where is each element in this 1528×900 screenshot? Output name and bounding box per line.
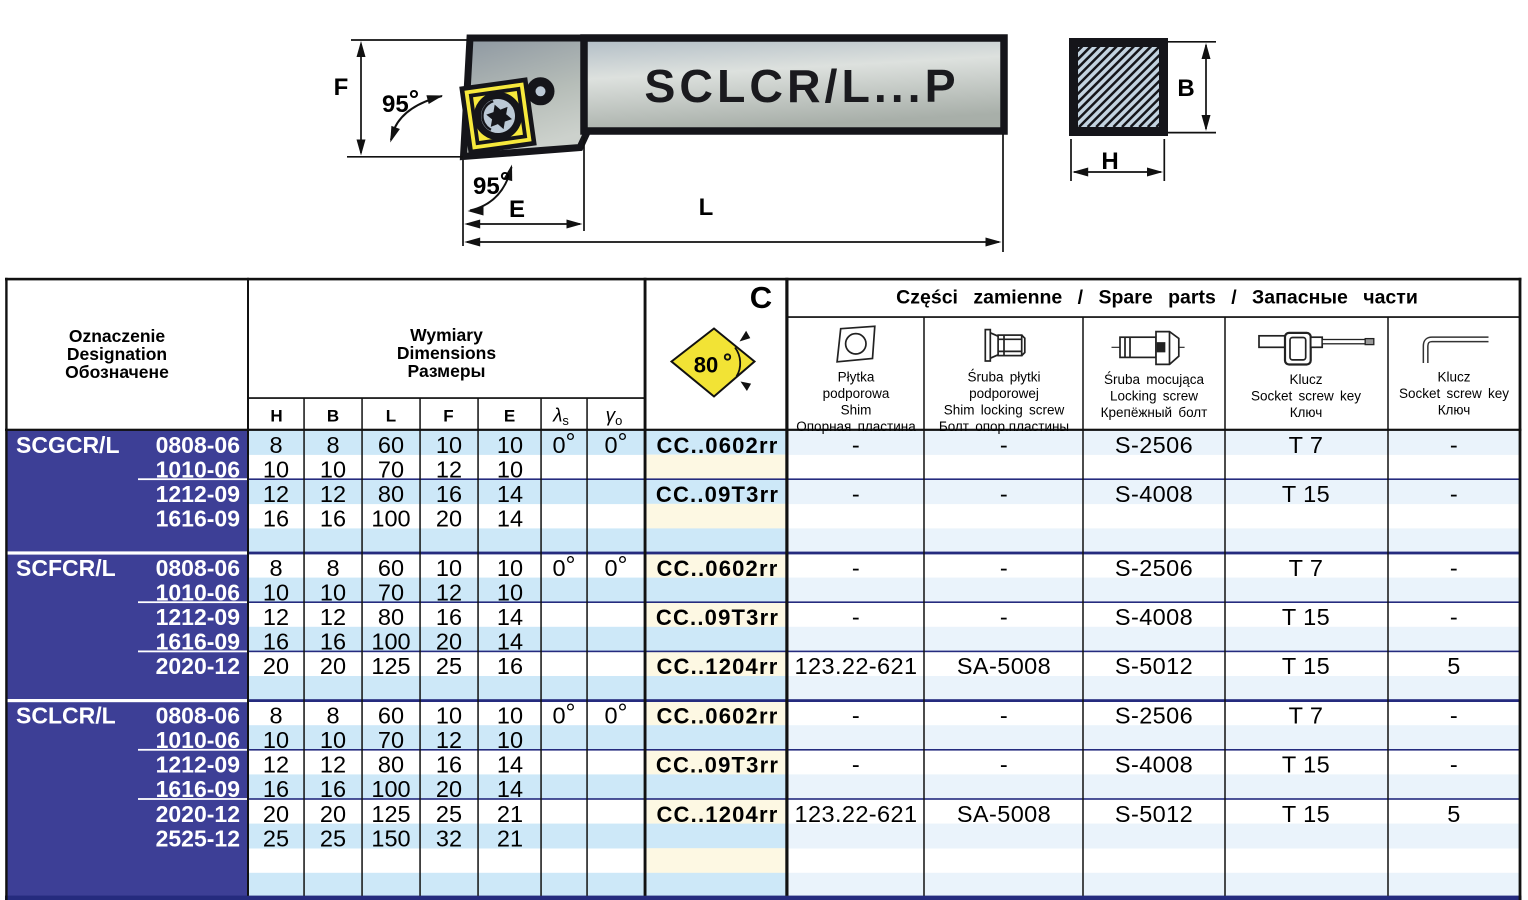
svg-text:S-2506: S-2506 [1115,555,1193,581]
svg-text:-: - [852,555,860,581]
svg-text:S-4008: S-4008 [1115,604,1193,630]
svg-text:10: 10 [497,456,523,482]
svg-text:14: 14 [497,752,523,778]
svg-text:L: L [386,407,396,426]
svg-text:-: - [1000,752,1008,778]
svg-text:Крепёжный болт: Крепёжный болт [1101,405,1208,420]
svg-text:C: C [750,280,772,315]
svg-text:0808-06: 0808-06 [156,555,240,581]
svg-text:12: 12 [436,727,462,753]
svg-text:Shim: Shim [841,403,872,418]
svg-text:T 7: T 7 [1289,555,1324,581]
svg-text:12: 12 [320,604,346,630]
svg-text:-: - [852,481,860,507]
svg-text:12: 12 [263,604,289,630]
svg-text:SA-5008: SA-5008 [957,653,1051,679]
svg-text:1616-09: 1616-09 [156,629,240,655]
svg-text:60: 60 [378,555,404,581]
svg-text:5: 5 [1447,801,1460,827]
svg-text:2020-12: 2020-12 [156,653,240,679]
svg-text:10: 10 [497,727,523,753]
svg-text:1616-09: 1616-09 [156,506,240,532]
svg-text:Socket screw key: Socket screw key [1399,386,1509,401]
svg-text:125: 125 [371,653,410,679]
svg-text:100: 100 [371,629,410,655]
svg-text:14: 14 [497,629,523,655]
svg-text:12: 12 [263,481,289,507]
svg-text:B: B [327,407,339,426]
svg-text:CC..1204rr: CC..1204rr [656,802,778,827]
svg-text:70: 70 [378,727,404,753]
svg-text:123.22-621: 123.22-621 [795,801,918,827]
svg-text:λs: λs [552,406,569,429]
svg-text:150: 150 [371,825,410,851]
svg-text:Oznaczenie: Oznaczenie [69,326,166,346]
svg-text:0°: 0° [552,428,575,458]
svg-text:1010-06: 1010-06 [156,456,240,482]
svg-text:Części zamienne / Spare parts: Części zamienne / Spare parts / Запасные… [896,287,1418,309]
svg-text:20: 20 [436,629,462,655]
svg-text:8: 8 [326,555,339,581]
svg-text:8: 8 [269,555,282,581]
svg-text:Designation: Designation [67,344,167,364]
svg-text:12: 12 [320,752,346,778]
svg-text:123.22-621: 123.22-621 [795,653,918,679]
svg-text:20: 20 [263,653,289,679]
svg-text:60: 60 [378,702,404,728]
svg-text:Размеры: Размеры [408,361,486,381]
svg-text:0°: 0° [604,551,627,581]
svg-text:80: 80 [694,353,718,378]
svg-text:60: 60 [378,432,404,458]
svg-text:10: 10 [436,555,462,581]
svg-text:10: 10 [497,702,523,728]
svg-text:-: - [852,604,860,630]
svg-text:14: 14 [497,481,523,507]
svg-text:95°: 95° [382,84,419,118]
svg-text:8: 8 [326,432,339,458]
svg-text:10: 10 [497,432,523,458]
svg-text:25: 25 [263,825,289,851]
svg-text:1212-09: 1212-09 [156,752,240,778]
svg-text:1616-09: 1616-09 [156,776,240,802]
svg-text:21: 21 [497,801,523,827]
svg-text:32: 32 [436,825,462,851]
svg-text:10: 10 [320,456,346,482]
svg-text:16: 16 [263,629,289,655]
svg-text:10: 10 [436,702,462,728]
svg-text:20: 20 [320,801,346,827]
svg-text:Dimensions: Dimensions [397,343,496,363]
svg-text:CC..1204rr: CC..1204rr [656,654,778,679]
svg-text:T 15: T 15 [1282,481,1330,507]
svg-text:S-4008: S-4008 [1115,481,1193,507]
svg-text:10: 10 [263,727,289,753]
svg-text:10: 10 [263,456,289,482]
svg-text:1010-06: 1010-06 [156,579,240,605]
svg-text:25: 25 [320,825,346,851]
svg-text:-: - [1000,702,1008,728]
svg-text:80: 80 [378,604,404,630]
svg-text:S-4008: S-4008 [1115,752,1193,778]
svg-text:10: 10 [436,432,462,458]
svg-text:E: E [504,407,515,426]
svg-text:20: 20 [320,653,346,679]
svg-text:16: 16 [436,604,462,630]
svg-text:-: - [1000,555,1008,581]
svg-text:14: 14 [497,604,523,630]
svg-text:1212-09: 1212-09 [156,604,240,630]
svg-text:-: - [1450,752,1458,778]
svg-text:H: H [270,407,282,426]
svg-text:CC..0602rr: CC..0602rr [656,556,778,581]
svg-text:-: - [1450,432,1458,458]
svg-text:Socket screw key: Socket screw key [1251,389,1361,404]
svg-text:12: 12 [320,481,346,507]
svg-text:CC..09T3rr: CC..09T3rr [656,482,779,507]
svg-text:10: 10 [497,555,523,581]
svg-text:-: - [852,702,860,728]
svg-text:T 15: T 15 [1282,801,1330,827]
svg-text:podporowa: podporowa [823,386,890,401]
svg-text:Ключ: Ключ [1438,403,1471,418]
svg-text:-: - [852,752,860,778]
svg-text:16: 16 [320,776,346,802]
svg-text:14: 14 [497,506,523,532]
svg-text:Ключ: Ключ [1290,405,1323,420]
svg-text:Śruba płytki: Śruba płytki [967,370,1040,385]
svg-text:S-5012: S-5012 [1115,653,1193,679]
svg-text:CC..09T3rr: CC..09T3rr [656,605,779,630]
svg-text:SCGCR/L: SCGCR/L [16,432,120,458]
svg-text:Обозначене: Обозначене [65,362,169,382]
svg-text:1212-09: 1212-09 [156,481,240,507]
svg-text:H: H [1101,148,1118,175]
svg-text:70: 70 [378,456,404,482]
svg-text:0808-06: 0808-06 [156,702,240,728]
svg-text:70: 70 [378,579,404,605]
svg-text:0°: 0° [552,551,575,581]
svg-text:-: - [1000,481,1008,507]
svg-text:S-2506: S-2506 [1115,702,1193,728]
svg-text:T 15: T 15 [1282,653,1330,679]
svg-text:16: 16 [436,481,462,507]
svg-text:T 15: T 15 [1282,604,1330,630]
svg-text:-: - [1450,702,1458,728]
svg-text:Locking screw: Locking screw [1110,389,1198,404]
svg-text:-: - [1000,432,1008,458]
svg-text:SCLCR/L: SCLCR/L [16,702,116,728]
svg-text:Klucz: Klucz [1289,372,1322,387]
svg-text:-: - [1450,555,1458,581]
svg-text:0°: 0° [604,428,627,458]
svg-text:L: L [699,194,714,221]
svg-text:100: 100 [371,776,410,802]
svg-text:20: 20 [436,776,462,802]
svg-text:10: 10 [497,579,523,605]
svg-text:T 7: T 7 [1289,432,1324,458]
svg-text:F: F [334,74,349,101]
svg-text:12: 12 [263,752,289,778]
svg-text:T 7: T 7 [1289,702,1324,728]
svg-text:E: E [509,196,525,223]
svg-text:Płytka: Płytka [838,370,875,385]
svg-text:12: 12 [436,579,462,605]
svg-text:-: - [1450,481,1458,507]
svg-text:1010-06: 1010-06 [156,727,240,753]
svg-text:100: 100 [371,506,410,532]
svg-text:0°: 0° [552,699,575,729]
svg-text:CC..0602rr: CC..0602rr [656,703,778,728]
svg-text:10: 10 [320,727,346,753]
svg-text:2525-12: 2525-12 [156,825,240,851]
svg-text:2020-12: 2020-12 [156,801,240,827]
svg-text:80: 80 [378,481,404,507]
svg-text:25: 25 [436,801,462,827]
svg-text:F: F [443,407,453,426]
svg-text:SCLCR/L...P: SCLCR/L...P [644,60,959,112]
svg-text:-: - [1450,604,1458,630]
svg-text:SCFCR/L: SCFCR/L [16,555,116,581]
svg-text:0808-06: 0808-06 [156,432,240,458]
svg-text:80: 80 [378,752,404,778]
svg-text:podporowej: podporowej [969,386,1039,401]
svg-text:14: 14 [497,776,523,802]
svg-text:16: 16 [320,506,346,532]
svg-text:-: - [1000,604,1008,630]
svg-text:16: 16 [320,629,346,655]
svg-text:B: B [1177,75,1194,102]
svg-text:16: 16 [436,752,462,778]
svg-text:γo: γo [606,406,623,429]
svg-text:0°: 0° [604,699,627,729]
svg-text:Shim locking screw: Shim locking screw [944,403,1065,418]
svg-text:20: 20 [263,801,289,827]
svg-text:-: - [852,432,860,458]
svg-text:10: 10 [263,579,289,605]
svg-text:95°: 95° [473,166,510,200]
svg-text:8: 8 [326,702,339,728]
svg-text:CC..09T3rr: CC..09T3rr [656,753,779,778]
svg-text:16: 16 [497,653,523,679]
svg-text:CC..0602rr: CC..0602rr [656,433,778,458]
svg-text:Śruba mocująca: Śruba mocująca [1104,372,1205,387]
svg-text:12: 12 [436,456,462,482]
svg-text:Wymiary: Wymiary [410,325,483,345]
svg-text:8: 8 [269,702,282,728]
svg-text:SA-5008: SA-5008 [957,801,1051,827]
svg-text:T 15: T 15 [1282,752,1330,778]
svg-text:125: 125 [371,801,410,827]
svg-text:20: 20 [436,506,462,532]
svg-text:Klucz: Klucz [1437,370,1470,385]
svg-text:S-2506: S-2506 [1115,432,1193,458]
svg-text:5: 5 [1447,653,1460,679]
svg-text:25: 25 [436,653,462,679]
svg-text:21: 21 [497,825,523,851]
svg-text:10: 10 [320,579,346,605]
svg-text:S-5012: S-5012 [1115,801,1193,827]
svg-text:16: 16 [263,506,289,532]
svg-text:16: 16 [263,776,289,802]
svg-text:8: 8 [269,432,282,458]
